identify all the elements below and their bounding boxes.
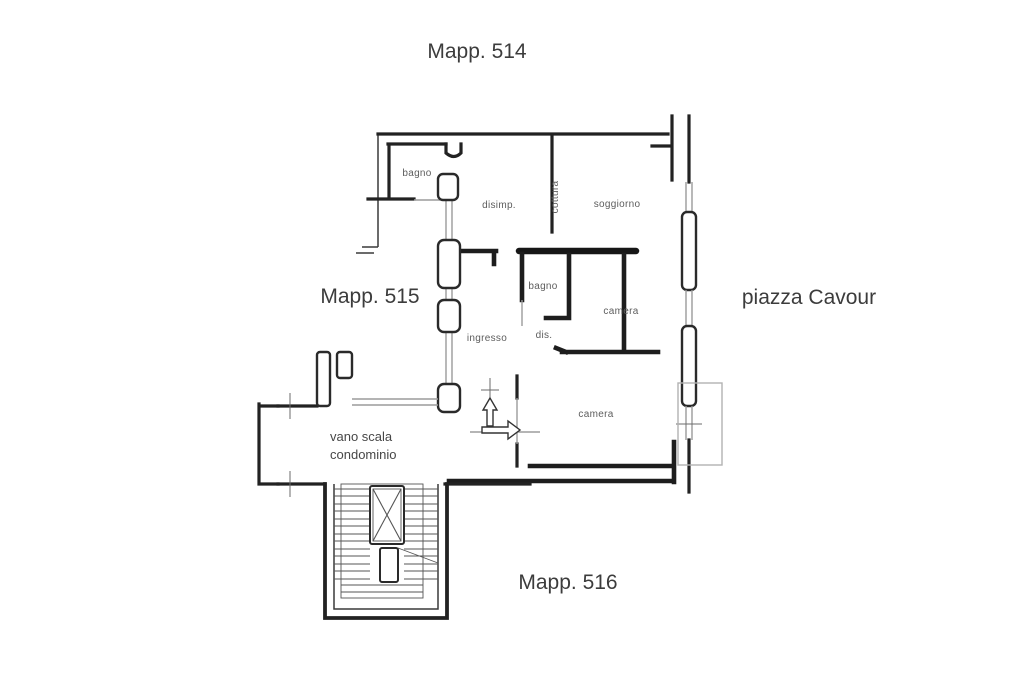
elevator-shaft-icon bbox=[370, 486, 404, 544]
room-label-soggiorno: soggiorno bbox=[594, 199, 641, 210]
floor-plan-page: Mapp. 514 Mapp. 515 piazza Cavour Mapp. … bbox=[0, 0, 1024, 683]
west-pillar-3 bbox=[438, 300, 460, 332]
west-pillar-1 bbox=[438, 174, 458, 200]
east-pillar-1 bbox=[682, 212, 696, 290]
room-label-bagno-nw: bagno bbox=[402, 168, 431, 179]
entrance-guide-lines bbox=[470, 378, 540, 432]
staircase bbox=[325, 484, 447, 618]
corridor-west-end-wall bbox=[259, 404, 278, 484]
outer-thin-walls bbox=[356, 134, 378, 253]
room-label-ingresso: ingresso bbox=[467, 333, 507, 344]
label-mapp-515: Mapp. 515 bbox=[320, 285, 419, 308]
east-window-2 bbox=[686, 290, 692, 326]
entrance-direction-up-arrow-icon bbox=[483, 398, 497, 426]
west-pillar-4 bbox=[438, 384, 460, 412]
room-label-cottura: cottura bbox=[550, 181, 561, 214]
room-label-dis: dis. bbox=[536, 330, 553, 341]
stair-treads-left bbox=[334, 489, 370, 579]
northeast-stub-walls bbox=[652, 116, 672, 180]
stair-landing-lines bbox=[341, 585, 423, 592]
corridor-north-window bbox=[352, 399, 438, 405]
disimp-ingresso-divider bbox=[458, 251, 496, 264]
room-label-camera-south: camera bbox=[578, 409, 613, 420]
corridor-pillar-2 bbox=[337, 352, 352, 378]
south-walls bbox=[449, 442, 674, 482]
label-mapp-516: Mapp. 516 bbox=[518, 571, 617, 594]
room-label-camera-east: camera bbox=[603, 306, 638, 317]
outer-wall-line bbox=[356, 134, 378, 253]
bagno-nw-door-notch bbox=[446, 144, 461, 157]
room-label-vano-scala-line1: vano scala bbox=[330, 429, 393, 444]
west-window-wall bbox=[438, 174, 460, 412]
east-window-1 bbox=[686, 182, 692, 212]
room-label-bagno-center: bagno bbox=[528, 281, 557, 292]
room-label-disimp: disimp. bbox=[482, 200, 516, 211]
room-label-vano-scala-line2: condominio bbox=[330, 447, 397, 462]
stair-direction-line bbox=[398, 548, 438, 563]
stair-newel-box bbox=[380, 548, 398, 582]
east-window-3 bbox=[686, 406, 692, 440]
east-pillar-2 bbox=[682, 326, 696, 406]
stair-treads-right bbox=[404, 489, 438, 579]
label-piazza-cavour: piazza Cavour bbox=[742, 286, 876, 309]
east-window-wall bbox=[676, 182, 722, 465]
west-pillar-2 bbox=[438, 240, 460, 288]
floor-plan-drawing: Mapp. 514 Mapp. 515 piazza Cavour Mapp. … bbox=[0, 0, 1024, 683]
camera-south-top-wall bbox=[556, 348, 658, 352]
corridor-pillar-1 bbox=[317, 352, 330, 406]
entrance-arrows bbox=[470, 378, 540, 439]
room-labels: bagno disimp. cottura soggiorno bagno ca… bbox=[330, 168, 640, 462]
label-mapp-514: Mapp. 514 bbox=[427, 40, 527, 63]
